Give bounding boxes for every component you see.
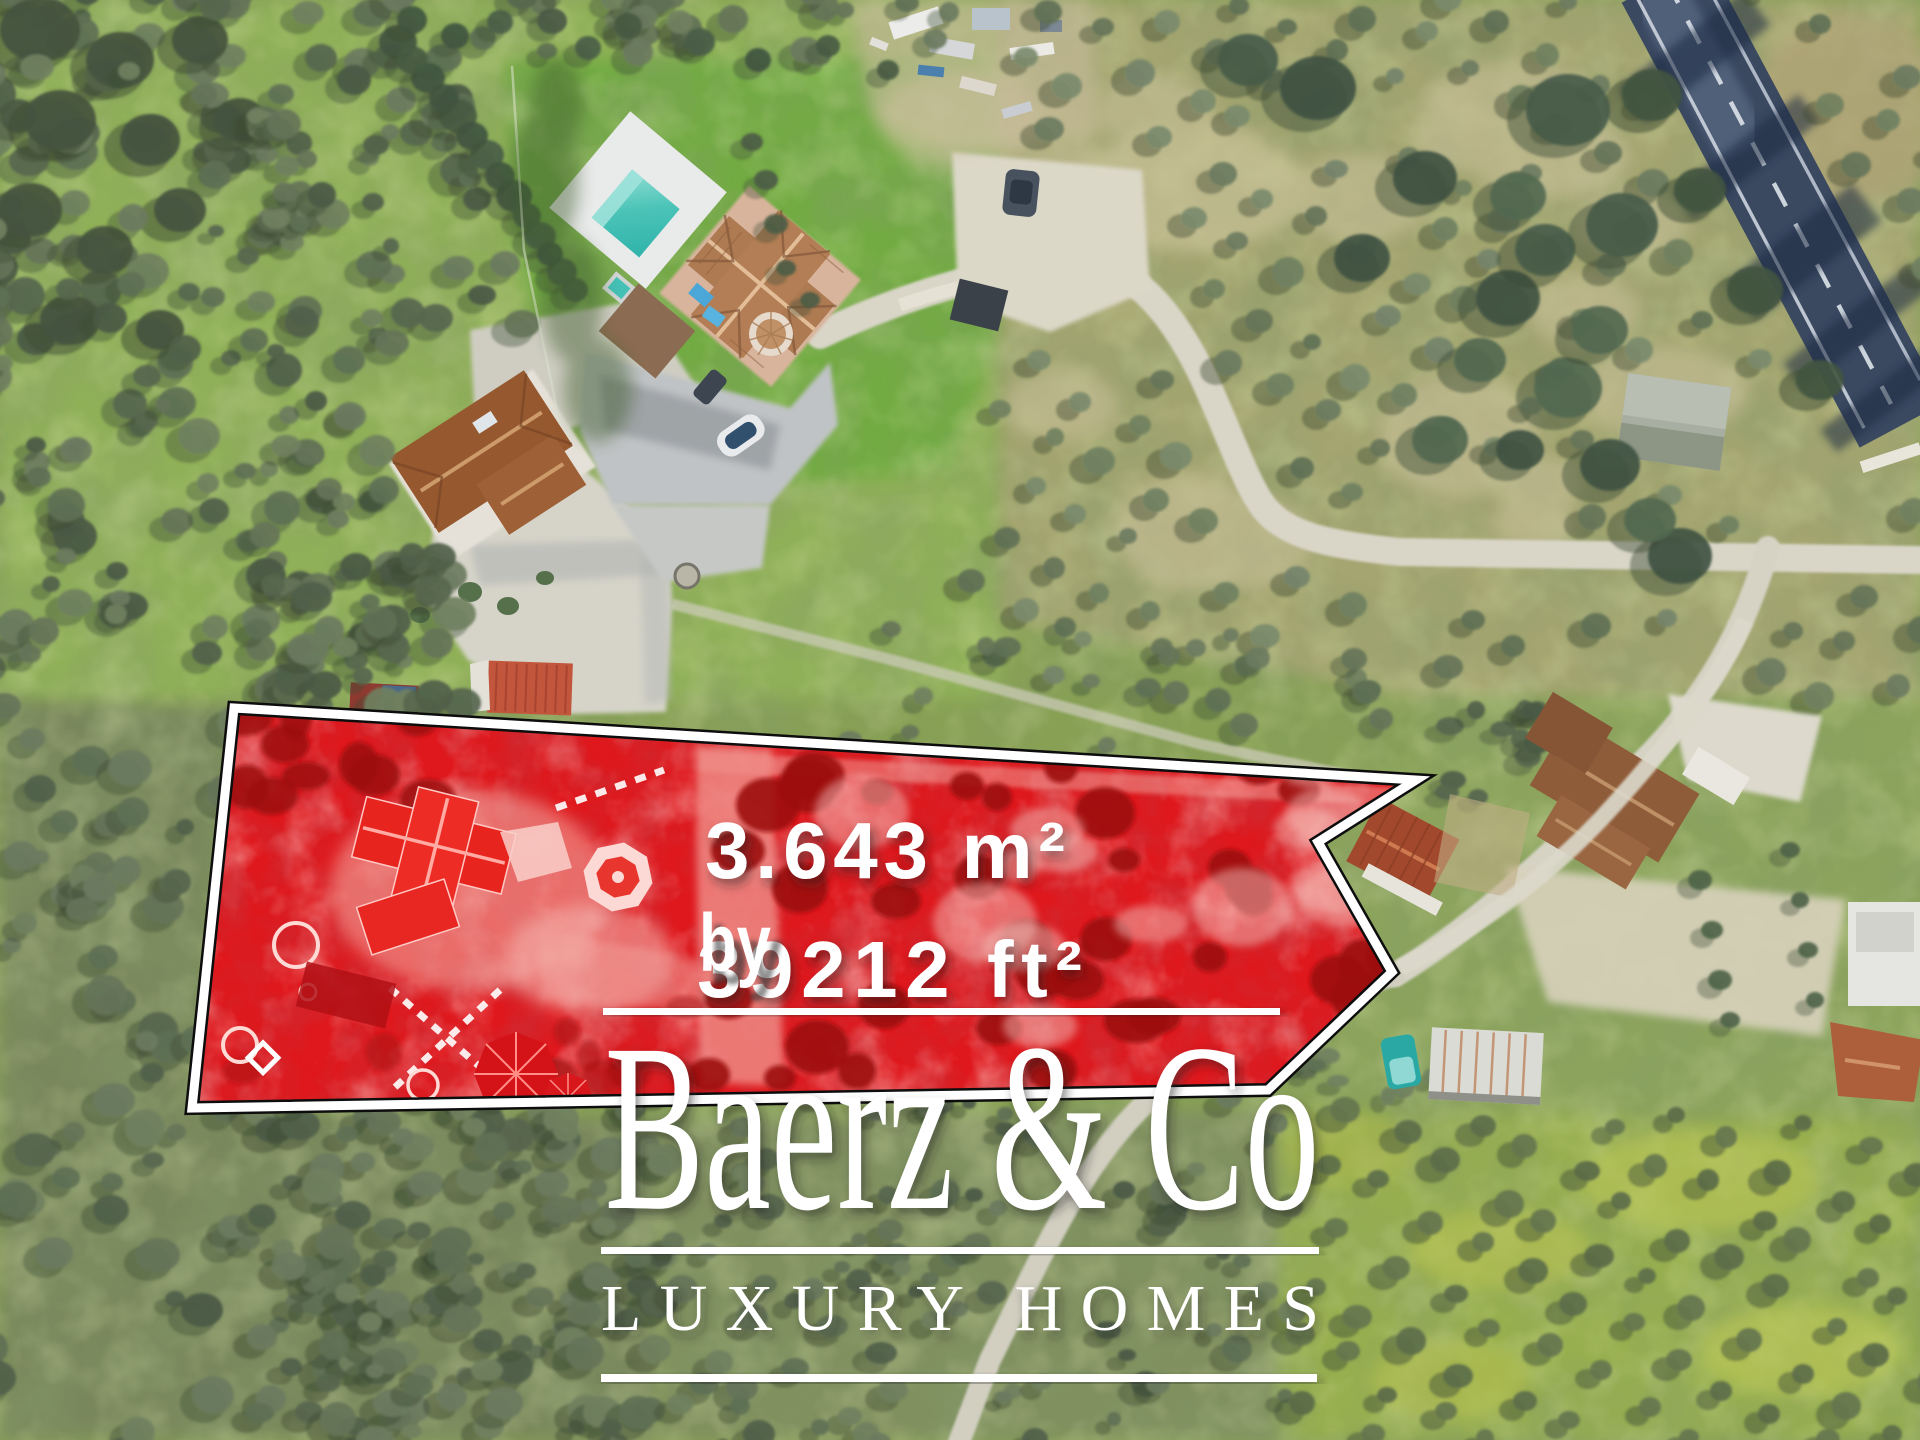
svg-text:3.643 m²: 3.643 m² bbox=[705, 806, 1065, 895]
svg-text:by: by bbox=[699, 898, 771, 989]
svg-text:Baerz & Co: Baerz & Co bbox=[605, 994, 1320, 1260]
